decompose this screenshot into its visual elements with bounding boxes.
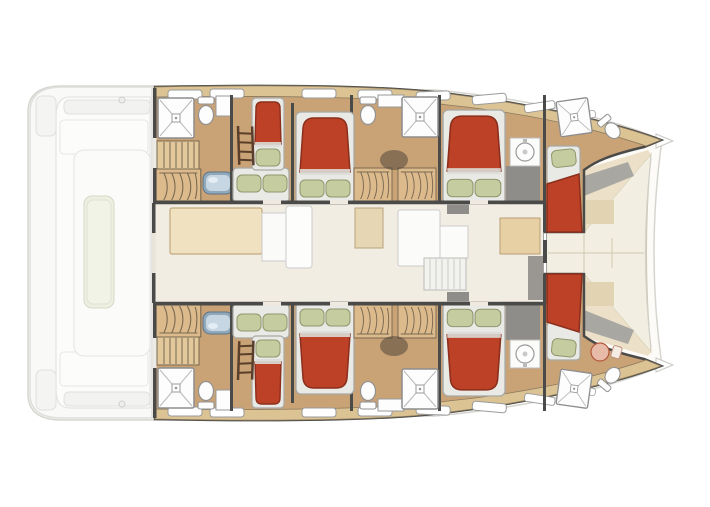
sofa bbox=[286, 206, 312, 268]
cockpit-bench bbox=[64, 392, 150, 406]
deck-plan-drawing: Catamaran yacht deck plan — twin-hull 8-… bbox=[0, 0, 710, 507]
chart-table bbox=[500, 218, 540, 254]
bow-wood-panel bbox=[586, 282, 614, 306]
cockpit-table-top bbox=[87, 200, 111, 304]
cockpit-bench bbox=[64, 100, 150, 114]
salon bbox=[152, 203, 547, 303]
entry-step bbox=[447, 292, 469, 302]
winch bbox=[119, 401, 125, 407]
mast-post bbox=[528, 256, 543, 300]
aft-cockpit bbox=[30, 87, 152, 418]
bow-wood-panel bbox=[586, 200, 614, 224]
entry-step bbox=[447, 204, 469, 214]
sliding-door bbox=[152, 233, 156, 273]
galley-counter bbox=[440, 226, 468, 258]
transom-steps bbox=[36, 96, 56, 136]
winch bbox=[119, 97, 125, 103]
dining-table bbox=[170, 208, 262, 254]
galley-unit bbox=[355, 208, 383, 248]
deck-plan-canvas: Catamaran yacht deck plan — twin-hull 8-… bbox=[0, 0, 710, 507]
companionway-stairs bbox=[424, 258, 466, 290]
transom-steps bbox=[36, 370, 56, 410]
sofa bbox=[262, 213, 286, 261]
